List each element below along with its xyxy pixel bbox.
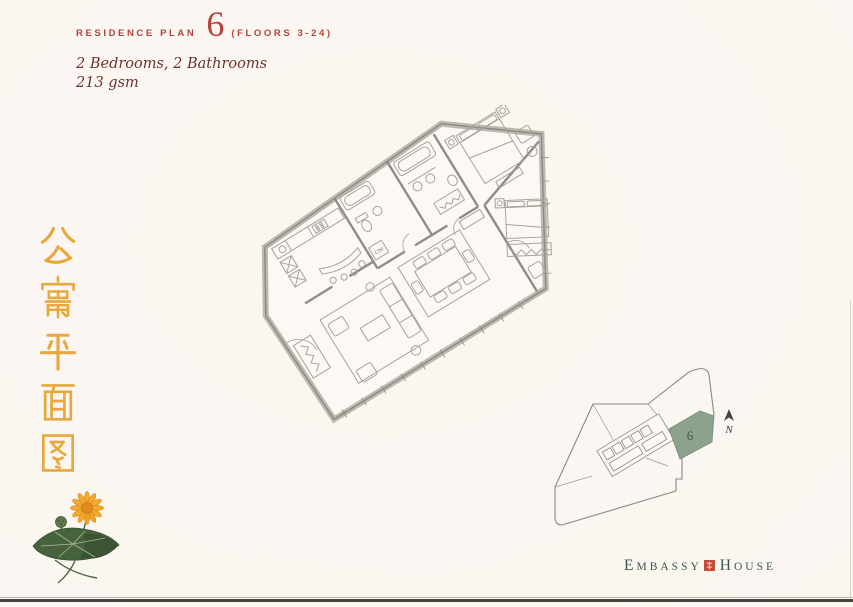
lotus-illustration: [25, 482, 125, 587]
lotus-leaves: [33, 517, 119, 561]
brand-logo: EMBASSY HOUSE: [624, 557, 776, 575]
area-text: 213 gsm: [76, 74, 267, 93]
floors-range-label: (FLOORS 3-24): [231, 28, 332, 39]
brand-word-house: HOUSE: [720, 557, 776, 575]
plan-number: 6: [206, 6, 224, 42]
floor-plan-drawing: C/M: [255, 105, 565, 455]
brand-word-embassy: EMBASSY: [624, 557, 702, 575]
lotus-flower: [71, 492, 104, 525]
cjk-glyph-yu: [36, 275, 80, 319]
unit-summary: 2 Bedrooms, 2 Bathrooms 213 gsm: [76, 55, 267, 93]
page-title: RESIDENCE PLAN 6 (FLOORS 3-24): [76, 6, 333, 42]
scan-edge-right: [850, 300, 851, 599]
brochure-page: RESIDENCE PLAN 6 (FLOORS 3-24) 2 Bedroom…: [0, 0, 853, 607]
compass-north-label: N: [724, 424, 733, 436]
compass-north-icon: N: [724, 409, 734, 436]
cjk-glyph-mian: [36, 379, 80, 423]
cjk-glyph-ping: [36, 327, 80, 371]
cjk-glyph-gong: [36, 223, 80, 267]
series-label: RESIDENCE PLAN: [76, 28, 196, 39]
bedrooms-bathrooms-text: 2 Bedrooms, 2 Bathrooms: [76, 55, 267, 74]
brand-seal-icon: [704, 560, 715, 571]
scan-edge-bottom: [0, 599, 853, 602]
core-elevators: [597, 414, 674, 477]
scan-edge-shadow: [0, 597, 853, 598]
key-plan-diagram: 6 N: [548, 366, 758, 531]
cjk-glyph-tu: [36, 431, 80, 475]
unit-6-label: 6: [687, 428, 694, 443]
vertical-title-chinese: 公寓平面图: [36, 223, 82, 483]
